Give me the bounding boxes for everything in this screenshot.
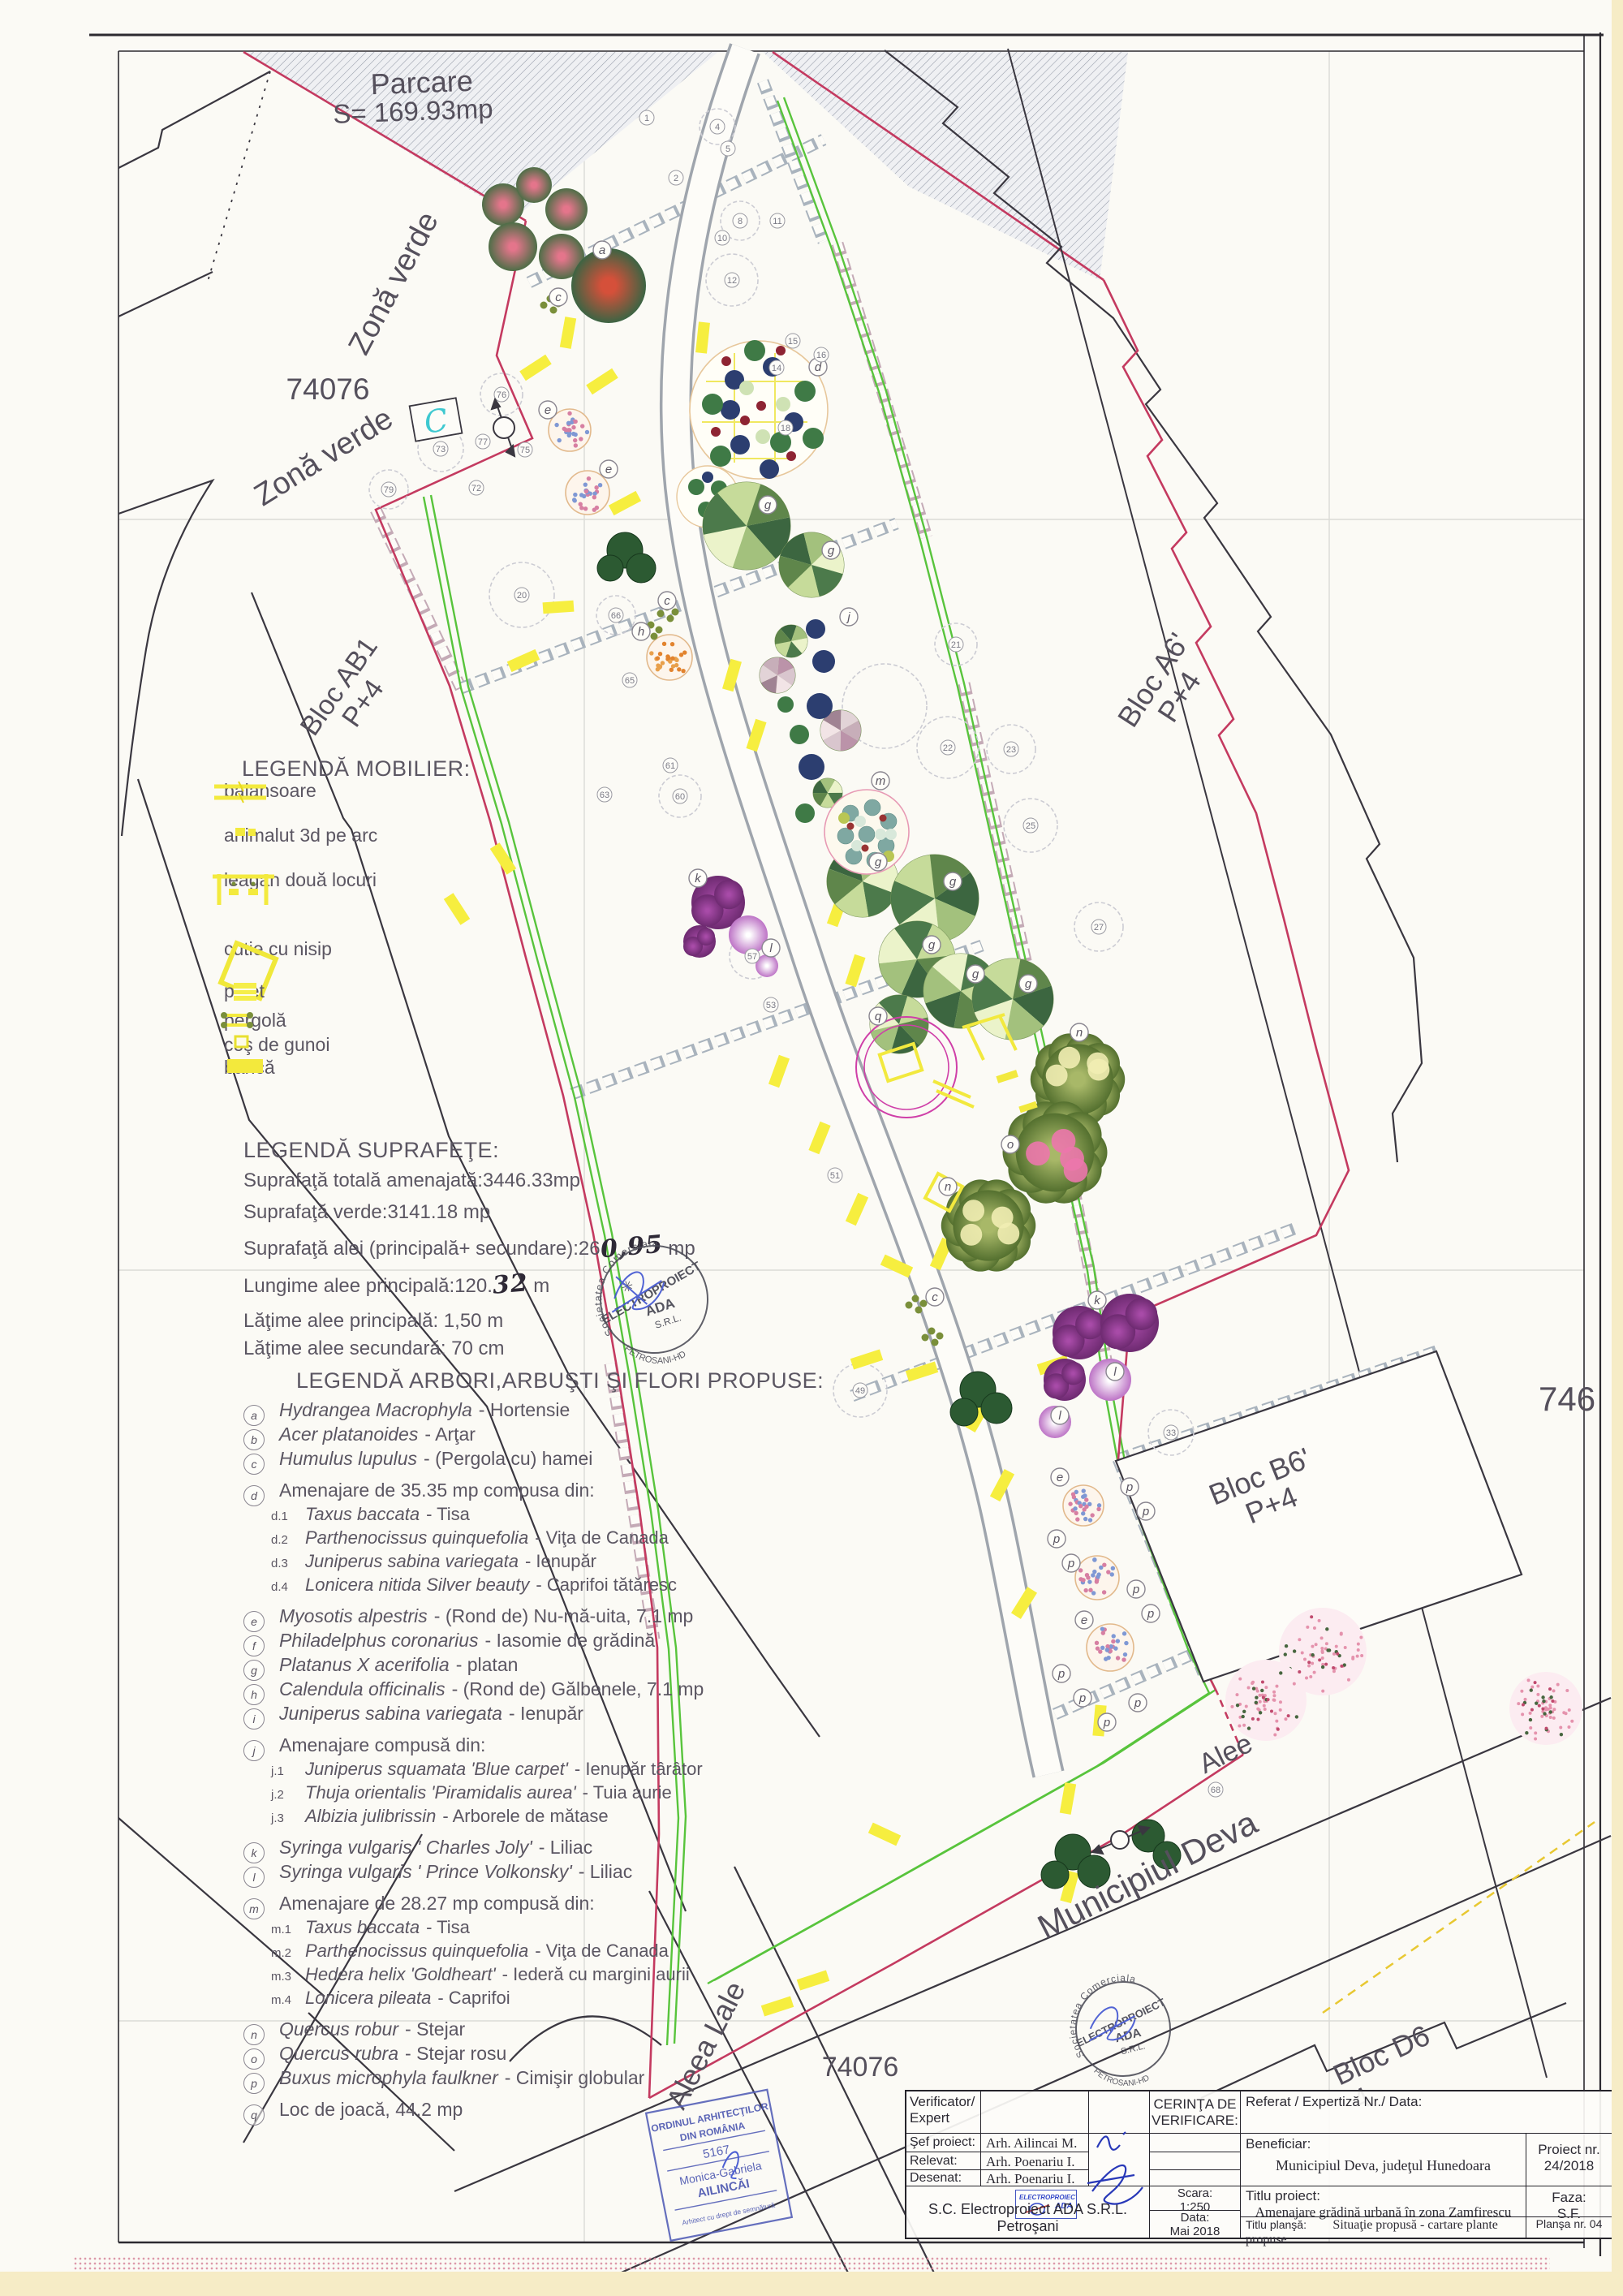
- humulus-dots: [928, 1328, 936, 1335]
- plant-common-name: - Viţa de Canada: [535, 1527, 669, 1549]
- humulus-dots: [656, 627, 663, 634]
- company-cell: ELECTROPROIECT ADA S.C. Electroproiect A…: [906, 2186, 1150, 2238]
- plant-latin-name: Syringa vulgaris ' Prince Volkonsky': [279, 1861, 572, 1883]
- svg-text:25: 25: [1026, 821, 1035, 831]
- legend-mobilier-title: LEGENDĂ MOBILIER:: [242, 756, 471, 782]
- plant-key-circle: d: [243, 1485, 265, 1506]
- plant-common-name: - platan: [456, 1654, 519, 1676]
- plant-latin-name: Parthenocissus quinquefolia: [305, 1527, 528, 1549]
- plant-subkey: d.4: [271, 1580, 305, 1594]
- title-block: Verificator/Expert CERINŢA DEVERIFICARE:…: [905, 2090, 1613, 2239]
- existing-tree-number: 23: [1004, 742, 1018, 756]
- existing-tree-number: 49: [853, 1383, 867, 1398]
- svg-text:p: p: [1126, 1480, 1133, 1494]
- plant-marker-g: g: [759, 496, 777, 514]
- plant-subkey: j.2: [271, 1788, 305, 1802]
- plant-legend-item-d: dAmenajare de 35.35 mp compusa din:: [243, 1480, 860, 1504]
- humulus-dots: [920, 1300, 928, 1307]
- hydrangea-tree: [489, 222, 537, 271]
- plant-latin-name: Acer platanoides: [279, 1424, 418, 1445]
- mobilier-item-cos: coş de gunoi: [213, 1034, 329, 1056]
- plant-marker-p: p: [1142, 1605, 1160, 1622]
- plant-legend-item-q: qLoc de joacă, 44.2 mp: [243, 2099, 860, 2123]
- plant-legend-item-n: nQuercus robur- Stejar: [243, 2018, 860, 2043]
- humulus-dots: [667, 615, 674, 622]
- plant-common-name: - (Rond de) Gălbenele, 7.1 mp: [452, 1678, 704, 1700]
- svg-text:72: 72: [471, 484, 481, 493]
- plant-marker-a: a: [593, 241, 611, 259]
- plant-key-circle: k: [243, 1842, 265, 1863]
- svg-text:4: 4: [715, 123, 720, 132]
- svg-text:o: o: [1007, 1138, 1014, 1152]
- plant-common-name: - Caprifoi tătăresc: [536, 1574, 677, 1596]
- plant-marker-p: p: [1053, 1665, 1070, 1682]
- plant-subkey: m.2: [271, 1946, 305, 1960]
- plant-marker-g: g: [869, 853, 887, 871]
- plant-legend-item-m: mAmenajare de 28.27 mp compusă din:: [243, 1893, 860, 1917]
- plant-marker-g: g: [822, 541, 840, 559]
- existing-tree-number: 22: [941, 740, 955, 755]
- plant-marker-n: n: [939, 1178, 957, 1195]
- suprafete-alei: Suprafaţă alei (principală+ secundare):2…: [243, 1233, 695, 1261]
- bench: [850, 1349, 883, 1369]
- mobilier-item-banca: bancă: [213, 1057, 275, 1079]
- platanus-tree: [775, 625, 807, 657]
- plant-marker-p: p: [1129, 1694, 1147, 1712]
- svg-text:p: p: [1134, 1696, 1141, 1710]
- syringa-tree: [1044, 1359, 1086, 1401]
- svg-text:73: 73: [436, 445, 446, 454]
- svg-text:g: g: [949, 875, 957, 889]
- humulus-dots: [550, 307, 558, 314]
- svg-text:76: 76: [497, 390, 506, 400]
- svg-text:g: g: [828, 544, 835, 558]
- plant-key-circle: n: [243, 2024, 265, 2045]
- existing-tree-number: 61: [663, 758, 678, 773]
- handwritten-correction: 32: [491, 1269, 529, 1300]
- bench: [846, 1193, 868, 1226]
- buxus-tree: [1041, 1861, 1069, 1889]
- parcare-area-label: S= 169.93mp: [333, 93, 493, 129]
- plant-marker-m: m: [872, 772, 889, 790]
- mobilier-item-balansoare: balansoare: [213, 780, 316, 802]
- plant-latin-name: Philadelphus coronarius: [279, 1630, 479, 1652]
- existing-tree-number: 16: [814, 347, 829, 362]
- suprafete-verde: Suprafaţă verde:3141.18 mp: [243, 1201, 695, 1224]
- plant-marker-g: g: [1019, 975, 1037, 993]
- plant-legend-item-d.3: d.3Juniperus sabina variegata- Ienupăr: [243, 1551, 860, 1574]
- buxus-tree: [626, 554, 656, 583]
- svg-text:p: p: [1067, 1557, 1074, 1570]
- svg-text:ELECTROPROIECT: ELECTROPROIECT: [1019, 2194, 1076, 2201]
- sef-proiect-name: Arh. Ailincai M.: [981, 2134, 1089, 2152]
- relevat-name: Arh. Poenariu I.: [981, 2152, 1089, 2170]
- svg-text:n: n: [945, 1180, 951, 1194]
- plant-subkey: m.3: [271, 1970, 305, 1984]
- plant-latin-name: Taxus baccata: [305, 1917, 420, 1938]
- flower-bed: [1087, 1624, 1134, 1671]
- plant-subkey: m.1: [271, 1923, 305, 1936]
- suprafete-latime-principala: Lăţime alee principală: 1,50 m: [243, 1310, 695, 1333]
- plant-subkey: j.1: [271, 1764, 305, 1778]
- composition-m: [824, 790, 909, 874]
- existing-tree-number: 65: [622, 673, 637, 687]
- existing-tree-number: 8: [733, 213, 747, 228]
- svg-text:c: c: [555, 291, 562, 304]
- plant-latin-name: Platanus X acerifolia: [279, 1654, 450, 1676]
- quercus-tree: [1003, 1101, 1108, 1203]
- plant-common-name: - Cimişir globular: [505, 2067, 645, 2089]
- plant-legend-item-d.4: d.4Lonicera nitida Silver beauty- Caprif…: [243, 1574, 860, 1598]
- svg-text:e: e: [1057, 1471, 1063, 1484]
- faza-cell: Faza:S.F.: [1526, 2186, 1612, 2217]
- humulus-dots: [932, 1339, 939, 1346]
- plant-key-circle: h: [243, 1684, 265, 1705]
- scara-cell: Scara:1:250: [1150, 2186, 1241, 2211]
- svg-text:33: 33: [1166, 1428, 1176, 1438]
- plant-legend-item-j.3: j.3Albizia julibrissin- Arborele de măta…: [243, 1806, 860, 1829]
- data-cell: Data:Mai 2018: [1150, 2211, 1241, 2238]
- svg-text:79: 79: [384, 485, 394, 495]
- plant-latin-name: Juniperus sabina variegata: [279, 1703, 502, 1725]
- svg-text:66: 66: [611, 611, 621, 621]
- svg-text:p: p: [1078, 1691, 1086, 1705]
- plant-legend-item-b: bAcer platanoides- Arţar: [243, 1424, 860, 1448]
- north-arrow: [492, 399, 514, 456]
- plant-marker-h: h: [632, 622, 650, 640]
- plant-subkey: m.4: [271, 1993, 305, 2007]
- plant-common-name: - Caprifoi: [437, 1988, 510, 2009]
- legend-suprafete-title: LEGENDĂ SUPRAFEŢE:: [243, 1138, 695, 1163]
- svg-text:1: 1: [644, 114, 649, 123]
- plant-latin-name: Syringa vulgaris ' Charles Joly': [279, 1837, 532, 1859]
- svg-text:p: p: [1053, 1532, 1060, 1546]
- legend-plante: aHydrangea Macrophyla- HortensiebAcer pl…: [243, 1399, 860, 2123]
- plant-marker-j: j: [840, 608, 858, 626]
- platanus-tree: [703, 482, 790, 570]
- bench: [519, 355, 551, 381]
- buxus-tree: [981, 1393, 1012, 1424]
- existing-tree-number: 51: [828, 1168, 842, 1182]
- plant-legend-item-m.2: m.2Parthenocissus quinquefolia- Viţa de …: [243, 1941, 860, 1964]
- plant-common-name: - Ienupăr: [509, 1703, 583, 1725]
- bench: [609, 491, 641, 515]
- plant-legend-item-j.1: j.1Juniperus squamata 'Blue carpet'- Ien…: [243, 1759, 860, 1782]
- plant-marker-c: c: [926, 1288, 944, 1306]
- plant-common-name: Amenajare compusă din:: [279, 1734, 485, 1756]
- plant-common-name: - (Rond de) Nu-mă-uita, 7.1 mp: [434, 1605, 694, 1627]
- plant-common-name: - Stejar: [405, 2018, 465, 2040]
- svg-text:p: p: [1103, 1716, 1110, 1730]
- shrub: [790, 725, 809, 744]
- proiect-nr-cell: Proiect nr.24/2018: [1526, 2134, 1612, 2186]
- zona-verde-upper: Zonă verde: [342, 206, 446, 360]
- beneficiar-cell: Beneficiar: Municipiul Deva, judeţul Hun…: [1241, 2134, 1526, 2186]
- existing-tree-number: 68: [1208, 1782, 1223, 1797]
- quercus-tree: [941, 1179, 1035, 1271]
- existing-tree-number: 79: [381, 482, 396, 497]
- utility-line: [1323, 1822, 1595, 2013]
- existing-tree-number: 72: [469, 480, 484, 495]
- svg-text:77: 77: [478, 437, 488, 447]
- bench: [845, 954, 865, 987]
- humulus-dots: [540, 302, 548, 309]
- plant-marker-p: p: [1137, 1502, 1155, 1520]
- humulus-dots: [657, 610, 665, 618]
- svg-text:5: 5: [725, 144, 730, 154]
- plant-marker-g: g: [923, 936, 941, 954]
- svg-text:68: 68: [1211, 1786, 1220, 1795]
- svg-text:63: 63: [600, 790, 609, 800]
- titlu-plansa-cell: Titlu planşă: Situaţie propusă - cartare…: [1241, 2217, 1526, 2238]
- existing-tree-number: 2: [669, 170, 683, 185]
- plant-marker-g: g: [966, 965, 984, 983]
- shrub: [807, 693, 833, 719]
- plant-key-circle: l: [243, 1867, 265, 1888]
- desenat-label: Desenat:: [906, 2170, 981, 2186]
- verificator-signature-cell: [1089, 2091, 1150, 2134]
- plansa-nr-cell: Planşa nr. 04: [1526, 2217, 1612, 2238]
- plant-legend-item-a: aHydrangea Macrophyla- Hortensie: [243, 1399, 860, 1424]
- humulus-dots: [906, 1302, 913, 1309]
- hydrangea-tree: [545, 188, 588, 230]
- existing-tree-number: 15: [786, 334, 800, 348]
- plant-key-circle: c: [243, 1454, 265, 1475]
- plant-latin-name: Juniperus squamata 'Blue carpet': [305, 1759, 568, 1780]
- plant-latin-name: Buxus microphyla faulkner: [279, 2067, 498, 2089]
- plant-legend-item-o: oQuercus rubra- Stejar rosu: [243, 2043, 860, 2067]
- humulus-dots: [672, 609, 679, 616]
- suprafete-latime-secundara: Lăţime alee secundară: 70 cm: [243, 1338, 695, 1360]
- plant-marker-q: q: [869, 1007, 887, 1025]
- bloc-d6-label: Bloc D6: [1328, 2018, 1435, 2091]
- plant-common-name: Amenajare de 28.27 mp compusă din:: [279, 1893, 595, 1915]
- legend-suprafete: LEGENDĂ SUPRAFEŢE: Suprafaţă totală amen…: [243, 1138, 695, 1360]
- plant-marker-e: e: [1075, 1611, 1093, 1629]
- existing-tree-number: 75: [518, 442, 532, 457]
- zona-verde-lower: Zonă verde: [248, 402, 398, 513]
- existing-tree-number: 20: [514, 588, 529, 602]
- referat-cell: Referat / Expertiză Nr./ Data:: [1241, 2091, 1612, 2134]
- scan-edge-artifact: [73, 2256, 1550, 2272]
- existing-tree-number: 77: [476, 434, 490, 449]
- plant-common-name: - Liliac: [539, 1837, 592, 1859]
- plant-marker-l: l: [762, 939, 780, 957]
- bench: [695, 321, 710, 353]
- company-name: S.C. Electroproiect ADA S.R.L. Petroşani: [906, 2201, 1149, 2235]
- plant-subkey: d.1: [271, 1510, 305, 1523]
- svg-text:p: p: [1142, 1505, 1149, 1518]
- existing-tree-number: 60: [673, 789, 687, 803]
- plant-latin-name: Calendula officinalis: [279, 1678, 446, 1700]
- bench: [586, 368, 618, 394]
- plant-legend-item-j.2: j.2Thuja orientalis 'Piramidalis aurea'-…: [243, 1782, 860, 1806]
- plant-common-name: Loc de joacă, 44.2 mp: [279, 2099, 463, 2121]
- svg-text:65: 65: [625, 676, 635, 686]
- suprafete-lungime: Lungime alee principală:120.32 m: [243, 1270, 695, 1299]
- plant-common-name: - Tisa: [426, 1504, 470, 1525]
- plant-marker-k: k: [689, 869, 707, 887]
- existing-tree-number: 4: [710, 119, 725, 134]
- existing-tree-number: 21: [949, 637, 963, 652]
- plant-common-name: - Ienupăr: [525, 1551, 596, 1572]
- titlu-proiect-cell: Titlu proiect: Amenajare grădină urbană …: [1241, 2186, 1526, 2217]
- plant-latin-name: Parthenocissus quinquefolia: [305, 1941, 528, 1962]
- legend-plante-title: LEGENDĂ ARBORI,ARBUŞTI ŞI FLORI PROPUSE:: [296, 1368, 824, 1394]
- plant-legend-item-g: gPlatanus X acerifolia- platan: [243, 1654, 860, 1678]
- plant-legend-item-f: fPhiladelphus coronarius- Iasomie de gră…: [243, 1630, 860, 1654]
- platanus-tree: [972, 958, 1053, 1040]
- cerinta-cell: CERINŢA DEVERIFICARE:: [1150, 2091, 1241, 2134]
- plant-common-name: - Stejar rosu: [405, 2043, 506, 2065]
- plant-common-name: - Tuia aurie: [583, 1782, 672, 1803]
- plant-marker-e: e: [1051, 1468, 1069, 1486]
- svg-text:49: 49: [855, 1386, 865, 1396]
- plant-marker-e: e: [539, 401, 557, 419]
- sef-proiect-label: Şef proiect:: [906, 2134, 981, 2152]
- existing-tree-number: 25: [1023, 818, 1038, 833]
- plant-legend-item-d.2: d.2Parthenocissus quinquefolia- Viţa de …: [243, 1527, 860, 1551]
- plant-common-name: - Viţa de Canada: [535, 1941, 669, 1962]
- plant-legend-item-i: iJuniperus sabina variegata- Ienupăr: [243, 1703, 860, 1727]
- plant-legend-item-k: kSyringa vulgaris ' Charles Joly'- Lilia…: [243, 1837, 860, 1861]
- svg-text:75: 75: [520, 446, 530, 455]
- svg-text:g: g: [928, 938, 936, 952]
- plant-subkey: d.2: [271, 1533, 305, 1547]
- svg-text:h: h: [638, 625, 644, 639]
- plant-legend-item-p: pBuxus microphyla faulkner- Cimişir glob…: [243, 2067, 860, 2091]
- flower-bed: [566, 471, 609, 515]
- svg-text:53: 53: [766, 1001, 776, 1010]
- plant-marker-o: o: [1001, 1135, 1019, 1153]
- existing-tree-number: 1: [639, 110, 654, 125]
- existing-tree-number: 10: [715, 230, 730, 245]
- plant-key-circle: a: [243, 1405, 265, 1426]
- plant-legend-item-c: cHumulus lupulus- (Pergola cu) hamei: [243, 1448, 860, 1472]
- svg-text:12: 12: [727, 276, 737, 286]
- plant-latin-name: Quercus rubra: [279, 2043, 398, 2065]
- existing-tree-number: 18: [778, 420, 793, 435]
- existing-tree-number: 33: [1164, 1425, 1178, 1440]
- svg-text:16: 16: [816, 351, 826, 360]
- svg-text:8: 8: [738, 217, 743, 226]
- plant-marker-c: c: [549, 288, 567, 306]
- svg-text:11: 11: [773, 217, 781, 226]
- humulus-dots: [912, 1295, 919, 1303]
- existing-tree-number: 12: [725, 273, 739, 287]
- svg-text:15: 15: [788, 337, 798, 347]
- plant-subkey: d.3: [271, 1557, 305, 1570]
- plant-common-name: - Iasomie de grădină: [485, 1630, 656, 1652]
- scan-edge-band: [0, 2272, 1623, 2296]
- existing-tree-number: 57: [745, 949, 760, 963]
- existing-tree-number: 5: [721, 141, 735, 156]
- plant-latin-name: Hedera helix 'Goldheart': [305, 1964, 496, 1985]
- plant-subkey: j.3: [271, 1811, 305, 1825]
- svg-text:p: p: [1147, 1607, 1154, 1621]
- verificator-cell: Verificator/Expert: [906, 2091, 981, 2134]
- buxus-tree: [597, 555, 623, 581]
- plant-marker-p: p: [1048, 1530, 1065, 1548]
- plan-sheet: acccdeeeeggggggghjklkllmnnoqpppppppppp12…: [0, 0, 1623, 2296]
- existing-tree-number: 76: [494, 387, 509, 402]
- plant-marker-p: p: [1062, 1554, 1080, 1572]
- bench: [560, 317, 576, 349]
- plant-latin-name: Albizia julibrissin: [305, 1806, 436, 1827]
- existing-tree-number: 11: [770, 213, 785, 228]
- handwritten-correction: 0,95: [599, 1230, 664, 1264]
- plant-marker-c: c: [658, 592, 676, 610]
- parcel-number-top: 74076: [286, 373, 370, 406]
- svg-text:g: g: [875, 855, 882, 869]
- plant-legend-item-d.1: d.1Taxus baccata- Tisa: [243, 1504, 860, 1527]
- svg-text:2: 2: [674, 174, 678, 183]
- plant-marker-g: g: [944, 872, 962, 890]
- svg-text:p: p: [1057, 1667, 1065, 1681]
- flower-bed: [647, 635, 692, 680]
- shrub: [812, 650, 835, 673]
- plant-marker-k: k: [1088, 1291, 1106, 1309]
- suprafete-total: Suprafaţă totală amenajată:3446.33mp: [243, 1170, 695, 1192]
- plant-common-name: - Ienupăr târâtor: [575, 1759, 703, 1780]
- svg-text:22: 22: [943, 743, 953, 753]
- existing-tree-number: 27: [1091, 920, 1106, 934]
- bench: [768, 1055, 790, 1088]
- plant-common-name: - Liliac: [579, 1861, 632, 1883]
- plant-latin-name: Myosotis alpestris: [279, 1605, 428, 1627]
- svg-text:20: 20: [517, 591, 527, 601]
- plant-marker-p: p: [1098, 1713, 1116, 1731]
- svg-text:c: c: [932, 1290, 938, 1304]
- humulus-dots: [915, 1307, 923, 1314]
- plant-latin-name: Quercus robur: [279, 2018, 398, 2040]
- svg-text:51: 51: [830, 1171, 840, 1181]
- svg-text:g: g: [764, 498, 772, 512]
- svg-text:c: c: [664, 594, 670, 608]
- plant-key-circle: q: [243, 2104, 265, 2126]
- bench: [868, 1823, 901, 1846]
- svg-text:e: e: [1081, 1613, 1087, 1627]
- plant-latin-name: Taxus baccata: [305, 1504, 420, 1525]
- plant-common-name: - Iederă cu margini aurii: [502, 1964, 690, 1985]
- svg-text:61: 61: [665, 761, 675, 771]
- plant-latin-name: Juniperus sabina variegata: [305, 1551, 519, 1572]
- bench: [444, 893, 470, 924]
- plant-key-circle: f: [243, 1635, 265, 1656]
- existing-tree-number: 63: [597, 787, 612, 802]
- plant-marker-n: n: [1070, 1023, 1088, 1041]
- plant-marker-p: p: [1121, 1478, 1139, 1496]
- humulus-dots: [936, 1333, 944, 1340]
- parcel-number-right: 746: [1539, 1380, 1595, 1418]
- mobilier-item-palet: palet: [213, 980, 265, 1002]
- plant-marker-p: p: [1074, 1689, 1091, 1707]
- plant-key-circle: e: [243, 1611, 265, 1632]
- plant-latin-name: Lonicera nitida Silver beauty: [305, 1574, 529, 1596]
- plant-legend-item-l: lSyringa vulgaris ' Prince Volkonsky'- L…: [243, 1861, 860, 1885]
- plant-legend-item-e: eMyosotis alpestris- (Rond de) Nu-mă-uit…: [243, 1605, 860, 1630]
- plant-latin-name: Thuja orientalis 'Piramidalis aurea': [305, 1782, 576, 1803]
- svg-text:27: 27: [1094, 923, 1104, 933]
- plant-key-circle: i: [243, 1708, 265, 1730]
- plant-latin-name: Hydrangea Macrophyla: [279, 1399, 472, 1421]
- mobilier-item-animalut: animalut 3d pe arc: [213, 825, 377, 846]
- mobilier-item-pergola: pergolă: [213, 1010, 286, 1032]
- svg-text:14: 14: [772, 364, 781, 373]
- plant-marker-l: l: [1106, 1363, 1124, 1381]
- mobilier-item-leagan: leagan două locuri: [213, 869, 377, 891]
- humulus-dots: [651, 633, 658, 640]
